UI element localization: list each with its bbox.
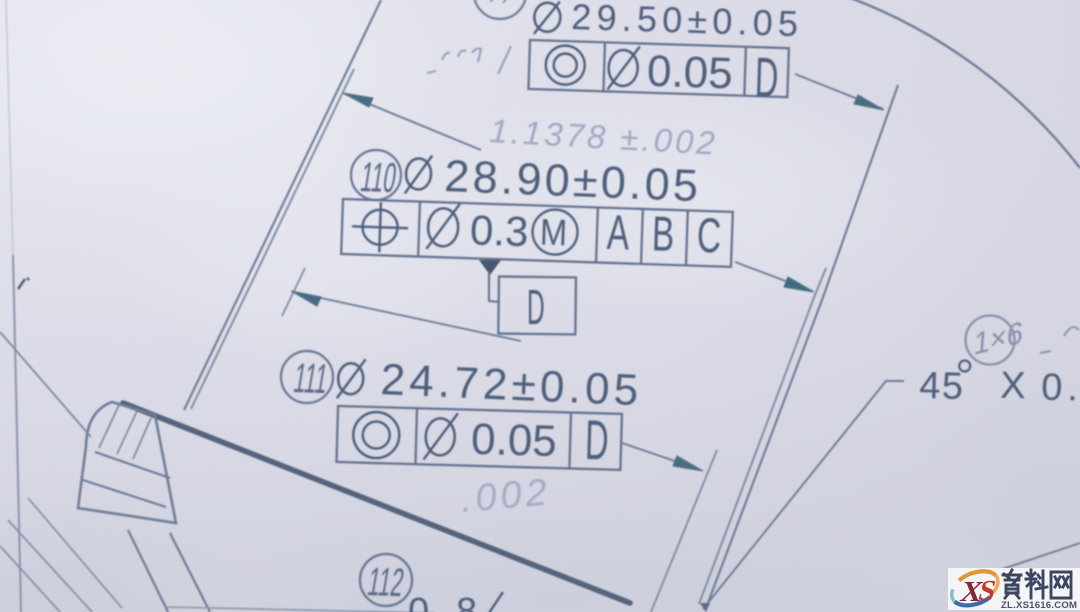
svg-text:0.: 0.	[1041, 367, 1080, 410]
svg-text:0.3: 0.3	[469, 206, 529, 255]
svg-text:A: A	[606, 204, 630, 260]
svg-text:29.50±0.05: 29.50±0.05	[571, 0, 804, 44]
svg-text:C: C	[696, 207, 722, 263]
svg-text:45: 45	[919, 365, 965, 408]
svg-text:0: 0	[408, 591, 429, 612]
svg-text:D: D	[754, 46, 779, 109]
svg-text:M: M	[539, 212, 567, 254]
svg-text:B: B	[651, 206, 675, 262]
svg-text:0.05: 0.05	[470, 415, 557, 466]
svg-text:D: D	[584, 409, 609, 472]
svg-text:ZL.XS1616.COM: ZL.XS1616.COM	[1001, 600, 1077, 611]
svg-text:D: D	[527, 281, 545, 335]
svg-text:28.90±0.05: 28.90±0.05	[443, 150, 702, 211]
svg-text:.002: .002	[459, 471, 552, 521]
svg-text:110: 110	[357, 155, 399, 202]
svg-text:8: 8	[456, 591, 477, 612]
svg-text:0.05: 0.05	[646, 47, 733, 99]
svg-text:X: X	[1000, 365, 1026, 408]
